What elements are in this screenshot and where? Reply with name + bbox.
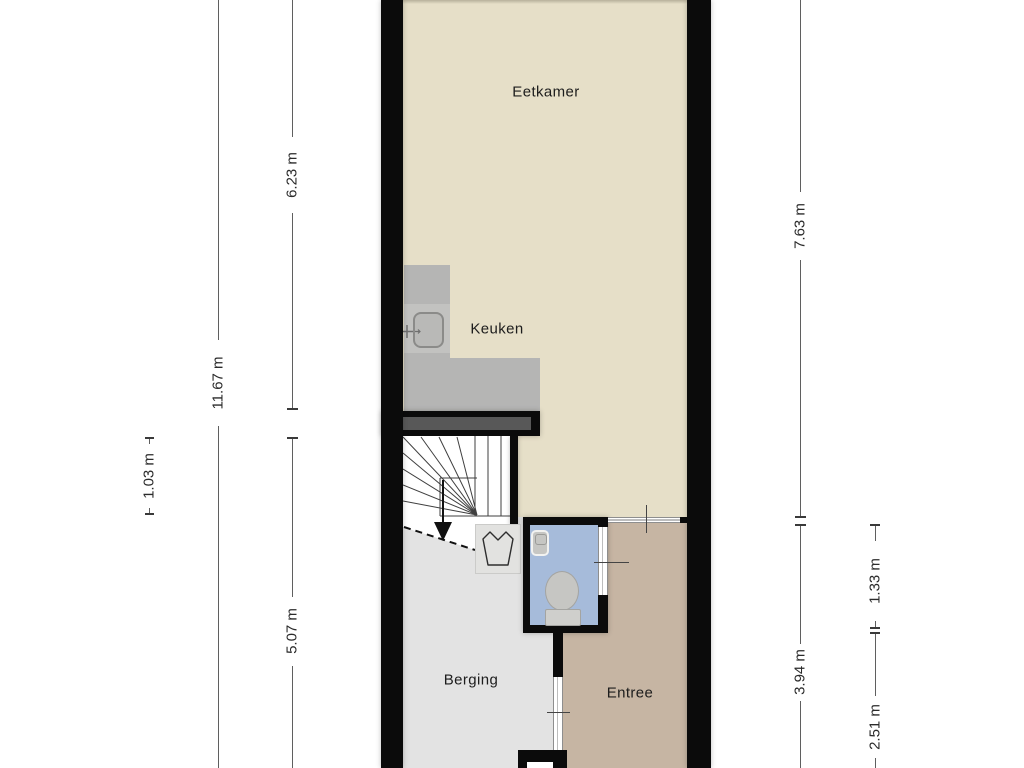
room-label-entree: Entree bbox=[607, 685, 654, 702]
kitchen-partition-wall-inset bbox=[390, 417, 531, 430]
dimension-left-stair-label: 1.03 m bbox=[141, 453, 158, 499]
floor-plan-canvas: Eetkamer Keuken Berging Entree 11.67 m 6… bbox=[0, 0, 1024, 768]
hand-basin-icon bbox=[531, 530, 549, 556]
washing-machine-icon bbox=[476, 525, 520, 573]
kitchen-counter-horizontal bbox=[404, 358, 540, 411]
entree-opening-right-stub bbox=[680, 517, 687, 523]
room-entree-floor-lower bbox=[563, 633, 608, 768]
room-label-eetkamer: Eetkamer bbox=[512, 84, 579, 101]
dimension-right-toilet-label: 1.33 m bbox=[867, 558, 884, 604]
toilet-cistern bbox=[545, 609, 581, 626]
entree-opening-marker-line bbox=[646, 505, 647, 533]
dimension-right-hall-label: 2.51 m bbox=[867, 704, 884, 750]
toilet-icon bbox=[545, 571, 579, 611]
dimension-right-upper-label: 7.63 m bbox=[792, 203, 809, 249]
eetkamer-top-cut-shadow bbox=[403, 0, 687, 4]
dimension-left-upper-label: 6.23 m bbox=[284, 152, 301, 198]
dimension-left-total-label: 11.67 m bbox=[210, 356, 227, 409]
dimension-left-lower-label: 5.07 m bbox=[284, 608, 301, 654]
berging-entree-door-swing-line bbox=[547, 712, 570, 713]
room-entree-floor bbox=[608, 523, 687, 768]
right-exterior-wall bbox=[687, 0, 711, 768]
hand-basin-bowl bbox=[535, 534, 547, 545]
stairwell-side-wall bbox=[510, 436, 518, 527]
stairs-well bbox=[403, 436, 510, 517]
berging-entree-wall bbox=[553, 633, 563, 677]
left-exterior-wall bbox=[381, 0, 403, 768]
room-label-berging: Berging bbox=[444, 672, 499, 689]
kitchen-faucet-icon bbox=[400, 323, 422, 340]
entree-opening bbox=[608, 517, 682, 523]
front-door-opening bbox=[527, 762, 553, 768]
washing-machine bbox=[475, 524, 521, 574]
room-label-keuken: Keuken bbox=[470, 321, 523, 338]
toilet-door-swing-line bbox=[594, 562, 629, 563]
dimension-right-lower-label: 3.94 m bbox=[792, 649, 809, 695]
toilet-door-opening bbox=[598, 527, 608, 595]
berging-entree-door-opening bbox=[553, 677, 563, 750]
